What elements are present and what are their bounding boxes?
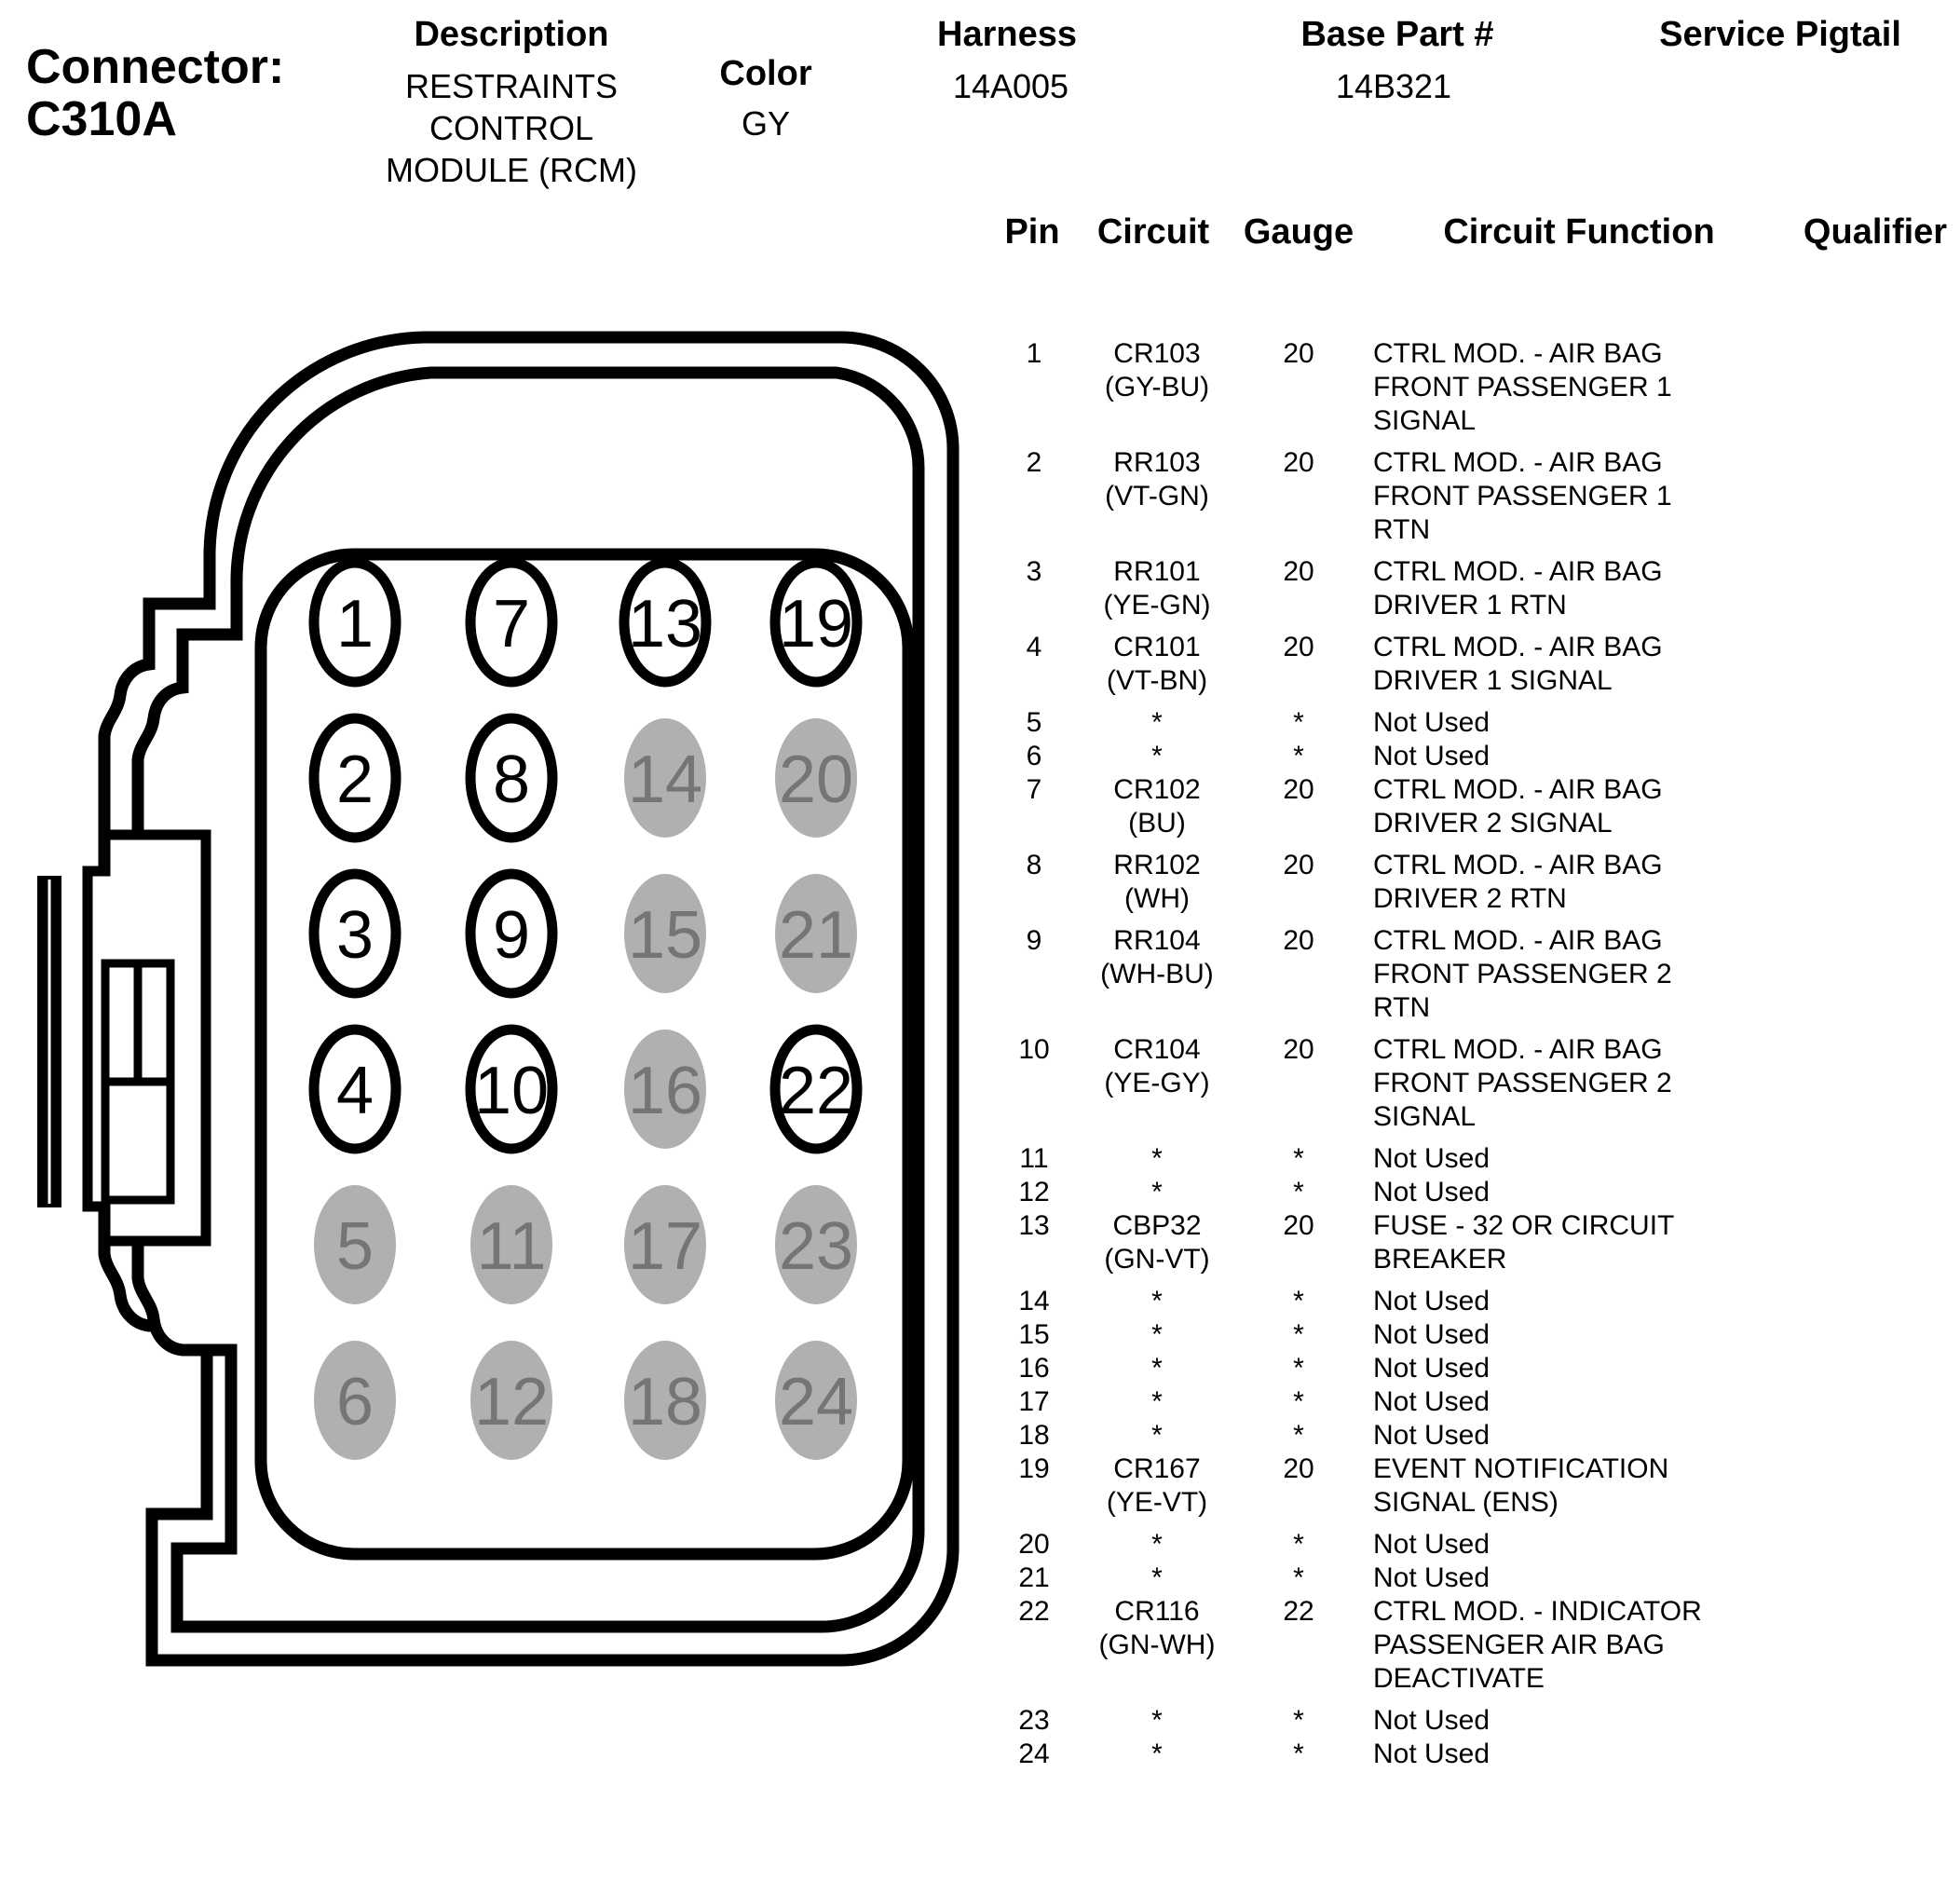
qualifier-cell bbox=[1746, 849, 1960, 916]
table-row-pin-8: 8RR102(WH)20CTRL MOD. - AIR BAG DRIVER 2… bbox=[987, 849, 1960, 916]
circuit-code: CR103 bbox=[1081, 337, 1233, 371]
pin-number-cell: 1 bbox=[987, 337, 1081, 438]
pin-number-cell: 6 bbox=[987, 740, 1081, 773]
pin-number-cell: 2 bbox=[987, 446, 1081, 547]
circuit-code: CR116 bbox=[1081, 1595, 1233, 1629]
pin-5-label: 5 bbox=[336, 1209, 374, 1284]
table-header-function: Circuit Function bbox=[1443, 212, 1714, 252]
gauge-cell: 20 bbox=[1233, 446, 1364, 547]
gauge-cell: 20 bbox=[1233, 337, 1364, 438]
pin-20-label: 20 bbox=[779, 743, 853, 817]
circuit-code: * bbox=[1081, 1176, 1233, 1209]
gauge-cell: 20 bbox=[1233, 1452, 1364, 1520]
gauge-cell: * bbox=[1233, 1528, 1364, 1562]
circuit-function-cell: Not Used bbox=[1364, 1738, 1746, 1771]
circuit-cell: CR103(GY-BU) bbox=[1081, 337, 1233, 438]
pin-16-label: 16 bbox=[628, 1054, 702, 1128]
pin-11-label: 11 bbox=[477, 1209, 547, 1284]
circuit-function-cell: Not Used bbox=[1364, 740, 1746, 773]
circuit-code: CR102 bbox=[1081, 773, 1233, 807]
pin-number-cell: 16 bbox=[987, 1352, 1081, 1385]
circuit-function-cell: CTRL MOD. - AIR BAG FRONT PASSENGER 2 SI… bbox=[1364, 1033, 1746, 1134]
circuit-cell: * bbox=[1081, 1704, 1233, 1738]
circuit-code: CR101 bbox=[1081, 631, 1233, 664]
pin-number-cell: 15 bbox=[987, 1318, 1081, 1352]
circuit-wire-color: (GN-VT) bbox=[1081, 1243, 1233, 1276]
qualifier-cell bbox=[1746, 1352, 1960, 1385]
circuit-function-cell: Not Used bbox=[1364, 1142, 1746, 1176]
circuit-wire-color: (WH-BU) bbox=[1081, 958, 1233, 991]
table-header-circuit: Circuit bbox=[1097, 212, 1209, 252]
table-row-pin-12: 12**Not Used bbox=[987, 1176, 1960, 1209]
circuit-cell: CR101(VT-BN) bbox=[1081, 631, 1233, 698]
table-header-pin: Pin bbox=[1004, 212, 1059, 252]
pin-9-label: 9 bbox=[493, 898, 530, 973]
table-row-pin-5: 5**Not Used bbox=[987, 706, 1960, 740]
qualifier-cell bbox=[1746, 1285, 1960, 1318]
table-row-pin-24: 24**Not Used bbox=[987, 1738, 1960, 1771]
pin-19-label: 19 bbox=[779, 587, 853, 661]
pin-4-label: 4 bbox=[336, 1054, 374, 1128]
pin-15-label: 15 bbox=[628, 898, 702, 973]
table-row-pin-2: 2RR103(VT-GN)20CTRL MOD. - AIR BAG FRONT… bbox=[987, 446, 1960, 547]
table-row-pin-16: 16**Not Used bbox=[987, 1352, 1960, 1385]
qualifier-cell bbox=[1746, 1738, 1960, 1771]
qualifier-cell bbox=[1746, 1452, 1960, 1520]
circuit-code: CR104 bbox=[1081, 1033, 1233, 1067]
circuit-function-cell: CTRL MOD. - AIR BAG DRIVER 2 RTN bbox=[1364, 849, 1746, 916]
circuit-function-cell: EVENT NOTIFICATION SIGNAL (ENS) bbox=[1364, 1452, 1746, 1520]
circuit-function-cell: Not Used bbox=[1364, 1419, 1746, 1452]
qualifier-cell bbox=[1746, 1318, 1960, 1352]
pin-3-label: 3 bbox=[336, 898, 374, 973]
pin-13-label: 13 bbox=[628, 587, 702, 661]
circuit-cell: RR101(YE-GN) bbox=[1081, 555, 1233, 622]
qualifier-cell bbox=[1746, 446, 1960, 547]
table-row-pin-14: 14**Not Used bbox=[987, 1285, 1960, 1318]
connector-face-diagram: 123456789101112131415161718192021222324 bbox=[0, 0, 1025, 1882]
table-row-pin-6: 6**Not Used bbox=[987, 740, 1960, 773]
table-row-pin-18: 18**Not Used bbox=[987, 1419, 1960, 1452]
gauge-cell: 20 bbox=[1233, 1209, 1364, 1276]
circuit-cell: * bbox=[1081, 1385, 1233, 1419]
circuit-cell: CR167(YE-VT) bbox=[1081, 1452, 1233, 1520]
circuit-wire-color: (WH) bbox=[1081, 882, 1233, 916]
table-row-pin-3: 3RR101(YE-GN)20CTRL MOD. - AIR BAG DRIVE… bbox=[987, 555, 1960, 622]
circuit-function-cell: Not Used bbox=[1364, 1562, 1746, 1595]
qualifier-cell bbox=[1746, 773, 1960, 840]
circuit-cell: * bbox=[1081, 1528, 1233, 1562]
pin-number-cell: 8 bbox=[987, 849, 1081, 916]
qualifier-cell bbox=[1746, 631, 1960, 698]
pin-number-cell: 22 bbox=[987, 1595, 1081, 1696]
pin-number-cell: 5 bbox=[987, 706, 1081, 740]
circuit-code: * bbox=[1081, 1285, 1233, 1318]
table-row-pin-15: 15**Not Used bbox=[987, 1318, 1960, 1352]
pin-number-cell: 21 bbox=[987, 1562, 1081, 1595]
pin-number-cell: 18 bbox=[987, 1419, 1081, 1452]
table-row-pin-1: 1CR103(GY-BU)20CTRL MOD. - AIR BAG FRONT… bbox=[987, 337, 1960, 438]
table-row-pin-7: 7CR102(BU)20CTRL MOD. - AIR BAG DRIVER 2… bbox=[987, 773, 1960, 840]
pin-6-label: 6 bbox=[336, 1365, 374, 1439]
circuit-function-cell: CTRL MOD. - AIR BAG DRIVER 2 SIGNAL bbox=[1364, 773, 1746, 840]
pin-14-label: 14 bbox=[628, 743, 702, 817]
circuit-code: CBP32 bbox=[1081, 1209, 1233, 1243]
qualifier-cell bbox=[1746, 1562, 1960, 1595]
circuit-code: * bbox=[1081, 1419, 1233, 1452]
circuit-function-cell: FUSE - 32 OR CIRCUIT BREAKER bbox=[1364, 1209, 1746, 1276]
circuit-cell: * bbox=[1081, 1142, 1233, 1176]
table-row-pin-19: 19CR167(YE-VT)20EVENT NOTIFICATION SIGNA… bbox=[987, 1452, 1960, 1520]
pin-1-label: 1 bbox=[336, 587, 374, 661]
table-row-pin-13: 13CBP32(GN-VT)20FUSE - 32 OR CIRCUIT BRE… bbox=[987, 1209, 1960, 1276]
circuit-cell: * bbox=[1081, 1738, 1233, 1771]
pin-number-cell: 4 bbox=[987, 631, 1081, 698]
pin-number-cell: 23 bbox=[987, 1704, 1081, 1738]
pin-17-label: 17 bbox=[628, 1209, 702, 1284]
pin-number-cell: 17 bbox=[987, 1385, 1081, 1419]
pin-number-cell: 20 bbox=[987, 1528, 1081, 1562]
circuit-wire-color: (BU) bbox=[1081, 807, 1233, 840]
circuit-cell: CBP32(GN-VT) bbox=[1081, 1209, 1233, 1276]
circuit-cell: CR104(YE-GY) bbox=[1081, 1033, 1233, 1134]
gauge-cell: * bbox=[1233, 706, 1364, 740]
circuit-code: * bbox=[1081, 1528, 1233, 1562]
circuit-function-cell: Not Used bbox=[1364, 1704, 1746, 1738]
circuit-function-cell: Not Used bbox=[1364, 1318, 1746, 1352]
gauge-cell: 22 bbox=[1233, 1595, 1364, 1696]
circuit-cell: CR116(GN-WH) bbox=[1081, 1595, 1233, 1696]
gauge-cell: * bbox=[1233, 1176, 1364, 1209]
circuit-wire-color: (VT-GN) bbox=[1081, 480, 1233, 513]
circuit-code: * bbox=[1081, 1562, 1233, 1595]
circuit-wire-color: (YE-GY) bbox=[1081, 1067, 1233, 1100]
circuit-function-cell: Not Used bbox=[1364, 1352, 1746, 1385]
circuit-function-cell: CTRL MOD. - AIR BAG FRONT PASSENGER 2 RT… bbox=[1364, 924, 1746, 1025]
circuit-code: * bbox=[1081, 706, 1233, 740]
pin-table-body: 1CR103(GY-BU)20CTRL MOD. - AIR BAG FRONT… bbox=[987, 337, 1960, 1771]
circuit-cell: * bbox=[1081, 706, 1233, 740]
gauge-cell: * bbox=[1233, 1352, 1364, 1385]
table-header-gauge: Gauge bbox=[1244, 212, 1354, 252]
table-row-pin-21: 21**Not Used bbox=[987, 1562, 1960, 1595]
table-row-pin-4: 4CR101(VT-BN)20CTRL MOD. - AIR BAG DRIVE… bbox=[987, 631, 1960, 698]
pin-number-cell: 10 bbox=[987, 1033, 1081, 1134]
table-header-qualifier: Qualifier bbox=[1803, 212, 1947, 252]
pin-7-label: 7 bbox=[493, 587, 530, 661]
circuit-function-cell: CTRL MOD. - AIR BAG FRONT PASSENGER 1 SI… bbox=[1364, 337, 1746, 438]
table-row-pin-23: 23**Not Used bbox=[987, 1704, 1960, 1738]
circuit-function-cell: Not Used bbox=[1364, 706, 1746, 740]
pin-21-label: 21 bbox=[779, 898, 853, 973]
circuit-code: * bbox=[1081, 740, 1233, 773]
qualifier-cell bbox=[1746, 1033, 1960, 1134]
circuit-function-cell: CTRL MOD. - AIR BAG DRIVER 1 RTN bbox=[1364, 555, 1746, 622]
gauge-cell: 20 bbox=[1233, 631, 1364, 698]
gauge-cell: 20 bbox=[1233, 773, 1364, 840]
circuit-function-cell: Not Used bbox=[1364, 1385, 1746, 1419]
gauge-cell: * bbox=[1233, 1285, 1364, 1318]
service-pigtail-label: Service Pigtail bbox=[1659, 15, 1901, 55]
circuit-code: * bbox=[1081, 1704, 1233, 1738]
qualifier-cell bbox=[1746, 1704, 1960, 1738]
pin-10-label: 10 bbox=[474, 1054, 549, 1128]
circuit-cell: * bbox=[1081, 1352, 1233, 1385]
qualifier-cell bbox=[1746, 337, 1960, 438]
circuit-function-cell: CTRL MOD. - AIR BAG FRONT PASSENGER 1 RT… bbox=[1364, 446, 1746, 547]
circuit-cell: * bbox=[1081, 1176, 1233, 1209]
pin-number-cell: 24 bbox=[987, 1738, 1081, 1771]
circuit-function-cell: CTRL MOD. - AIR BAG DRIVER 1 SIGNAL bbox=[1364, 631, 1746, 698]
gauge-cell: * bbox=[1233, 1385, 1364, 1419]
base-part-value: 14B321 bbox=[1336, 67, 1451, 106]
qualifier-cell bbox=[1746, 740, 1960, 773]
qualifier-cell bbox=[1746, 1528, 1960, 1562]
gauge-cell: * bbox=[1233, 740, 1364, 773]
circuit-cell: RR102(WH) bbox=[1081, 849, 1233, 916]
pin-number-cell: 14 bbox=[987, 1285, 1081, 1318]
pin-18-label: 18 bbox=[628, 1365, 702, 1439]
circuit-wire-color: (GY-BU) bbox=[1081, 371, 1233, 404]
pin-22-label: 22 bbox=[779, 1054, 853, 1128]
pin-number-cell: 11 bbox=[987, 1142, 1081, 1176]
gauge-cell: * bbox=[1233, 1562, 1364, 1595]
qualifier-cell bbox=[1746, 1209, 1960, 1276]
pin-number-cell: 3 bbox=[987, 555, 1081, 622]
pin-number-cell: 19 bbox=[987, 1452, 1081, 1520]
gauge-cell: 20 bbox=[1233, 924, 1364, 1025]
pin-2-label: 2 bbox=[336, 743, 374, 817]
circuit-cell: CR102(BU) bbox=[1081, 773, 1233, 840]
qualifier-cell bbox=[1746, 1419, 1960, 1452]
circuit-wire-color: (YE-GN) bbox=[1081, 589, 1233, 622]
qualifier-cell bbox=[1746, 555, 1960, 622]
circuit-function-cell: Not Used bbox=[1364, 1285, 1746, 1318]
circuit-code: * bbox=[1081, 1142, 1233, 1176]
circuit-code: RR101 bbox=[1081, 555, 1233, 589]
circuit-cell: * bbox=[1081, 740, 1233, 773]
qualifier-cell bbox=[1746, 1176, 1960, 1209]
circuit-cell: RR103(VT-GN) bbox=[1081, 446, 1233, 547]
circuit-function-cell: Not Used bbox=[1364, 1528, 1746, 1562]
qualifier-cell bbox=[1746, 924, 1960, 1025]
table-row-pin-11: 11**Not Used bbox=[987, 1142, 1960, 1176]
circuit-wire-color: (YE-VT) bbox=[1081, 1486, 1233, 1520]
pin-23-label: 23 bbox=[779, 1209, 853, 1284]
table-row-pin-20: 20**Not Used bbox=[987, 1528, 1960, 1562]
circuit-cell: RR104(WH-BU) bbox=[1081, 924, 1233, 1025]
circuit-function-cell: Not Used bbox=[1364, 1176, 1746, 1209]
pin-number-cell: 7 bbox=[987, 773, 1081, 840]
pin-12-label: 12 bbox=[474, 1365, 549, 1439]
base-part-label: Base Part # bbox=[1300, 15, 1493, 55]
gauge-cell: * bbox=[1233, 1704, 1364, 1738]
gauge-cell: * bbox=[1233, 1738, 1364, 1771]
circuit-cell: * bbox=[1081, 1285, 1233, 1318]
circuit-code: RR102 bbox=[1081, 849, 1233, 882]
pin-number-cell: 12 bbox=[987, 1176, 1081, 1209]
qualifier-cell bbox=[1746, 1142, 1960, 1176]
table-row-pin-10: 10CR104(YE-GY)20CTRL MOD. - AIR BAG FRON… bbox=[987, 1033, 1960, 1134]
gauge-cell: * bbox=[1233, 1318, 1364, 1352]
circuit-cell: * bbox=[1081, 1419, 1233, 1452]
circuit-wire-color: (VT-BN) bbox=[1081, 664, 1233, 698]
circuit-code: * bbox=[1081, 1352, 1233, 1385]
pin-8-label: 8 bbox=[493, 743, 530, 817]
gauge-cell: 20 bbox=[1233, 849, 1364, 916]
circuit-code: * bbox=[1081, 1738, 1233, 1771]
table-row-pin-17: 17**Not Used bbox=[987, 1385, 1960, 1419]
circuit-cell: * bbox=[1081, 1318, 1233, 1352]
circuit-code: * bbox=[1081, 1385, 1233, 1419]
qualifier-cell bbox=[1746, 1385, 1960, 1419]
circuit-cell: * bbox=[1081, 1562, 1233, 1595]
gauge-cell: 20 bbox=[1233, 555, 1364, 622]
circuit-wire-color: (GN-WH) bbox=[1081, 1629, 1233, 1662]
gauge-cell: 20 bbox=[1233, 1033, 1364, 1134]
gauge-cell: * bbox=[1233, 1419, 1364, 1452]
table-row-pin-22: 22CR116(GN-WH)22CTRL MOD. - INDICATOR PA… bbox=[987, 1595, 1960, 1696]
pin-number-cell: 13 bbox=[987, 1209, 1081, 1276]
pin-24-label: 24 bbox=[779, 1365, 853, 1439]
table-row-pin-9: 9RR104(WH-BU)20CTRL MOD. - AIR BAG FRONT… bbox=[987, 924, 1960, 1025]
circuit-code: CR167 bbox=[1081, 1452, 1233, 1486]
circuit-function-cell: CTRL MOD. - INDICATOR PASSENGER AIR BAG … bbox=[1364, 1595, 1746, 1696]
qualifier-cell bbox=[1746, 1595, 1960, 1696]
circuit-code: * bbox=[1081, 1318, 1233, 1352]
circuit-code: RR104 bbox=[1081, 924, 1233, 958]
circuit-code: RR103 bbox=[1081, 446, 1233, 480]
qualifier-cell bbox=[1746, 706, 1960, 740]
gauge-cell: * bbox=[1233, 1142, 1364, 1176]
pin-number-cell: 9 bbox=[987, 924, 1081, 1025]
